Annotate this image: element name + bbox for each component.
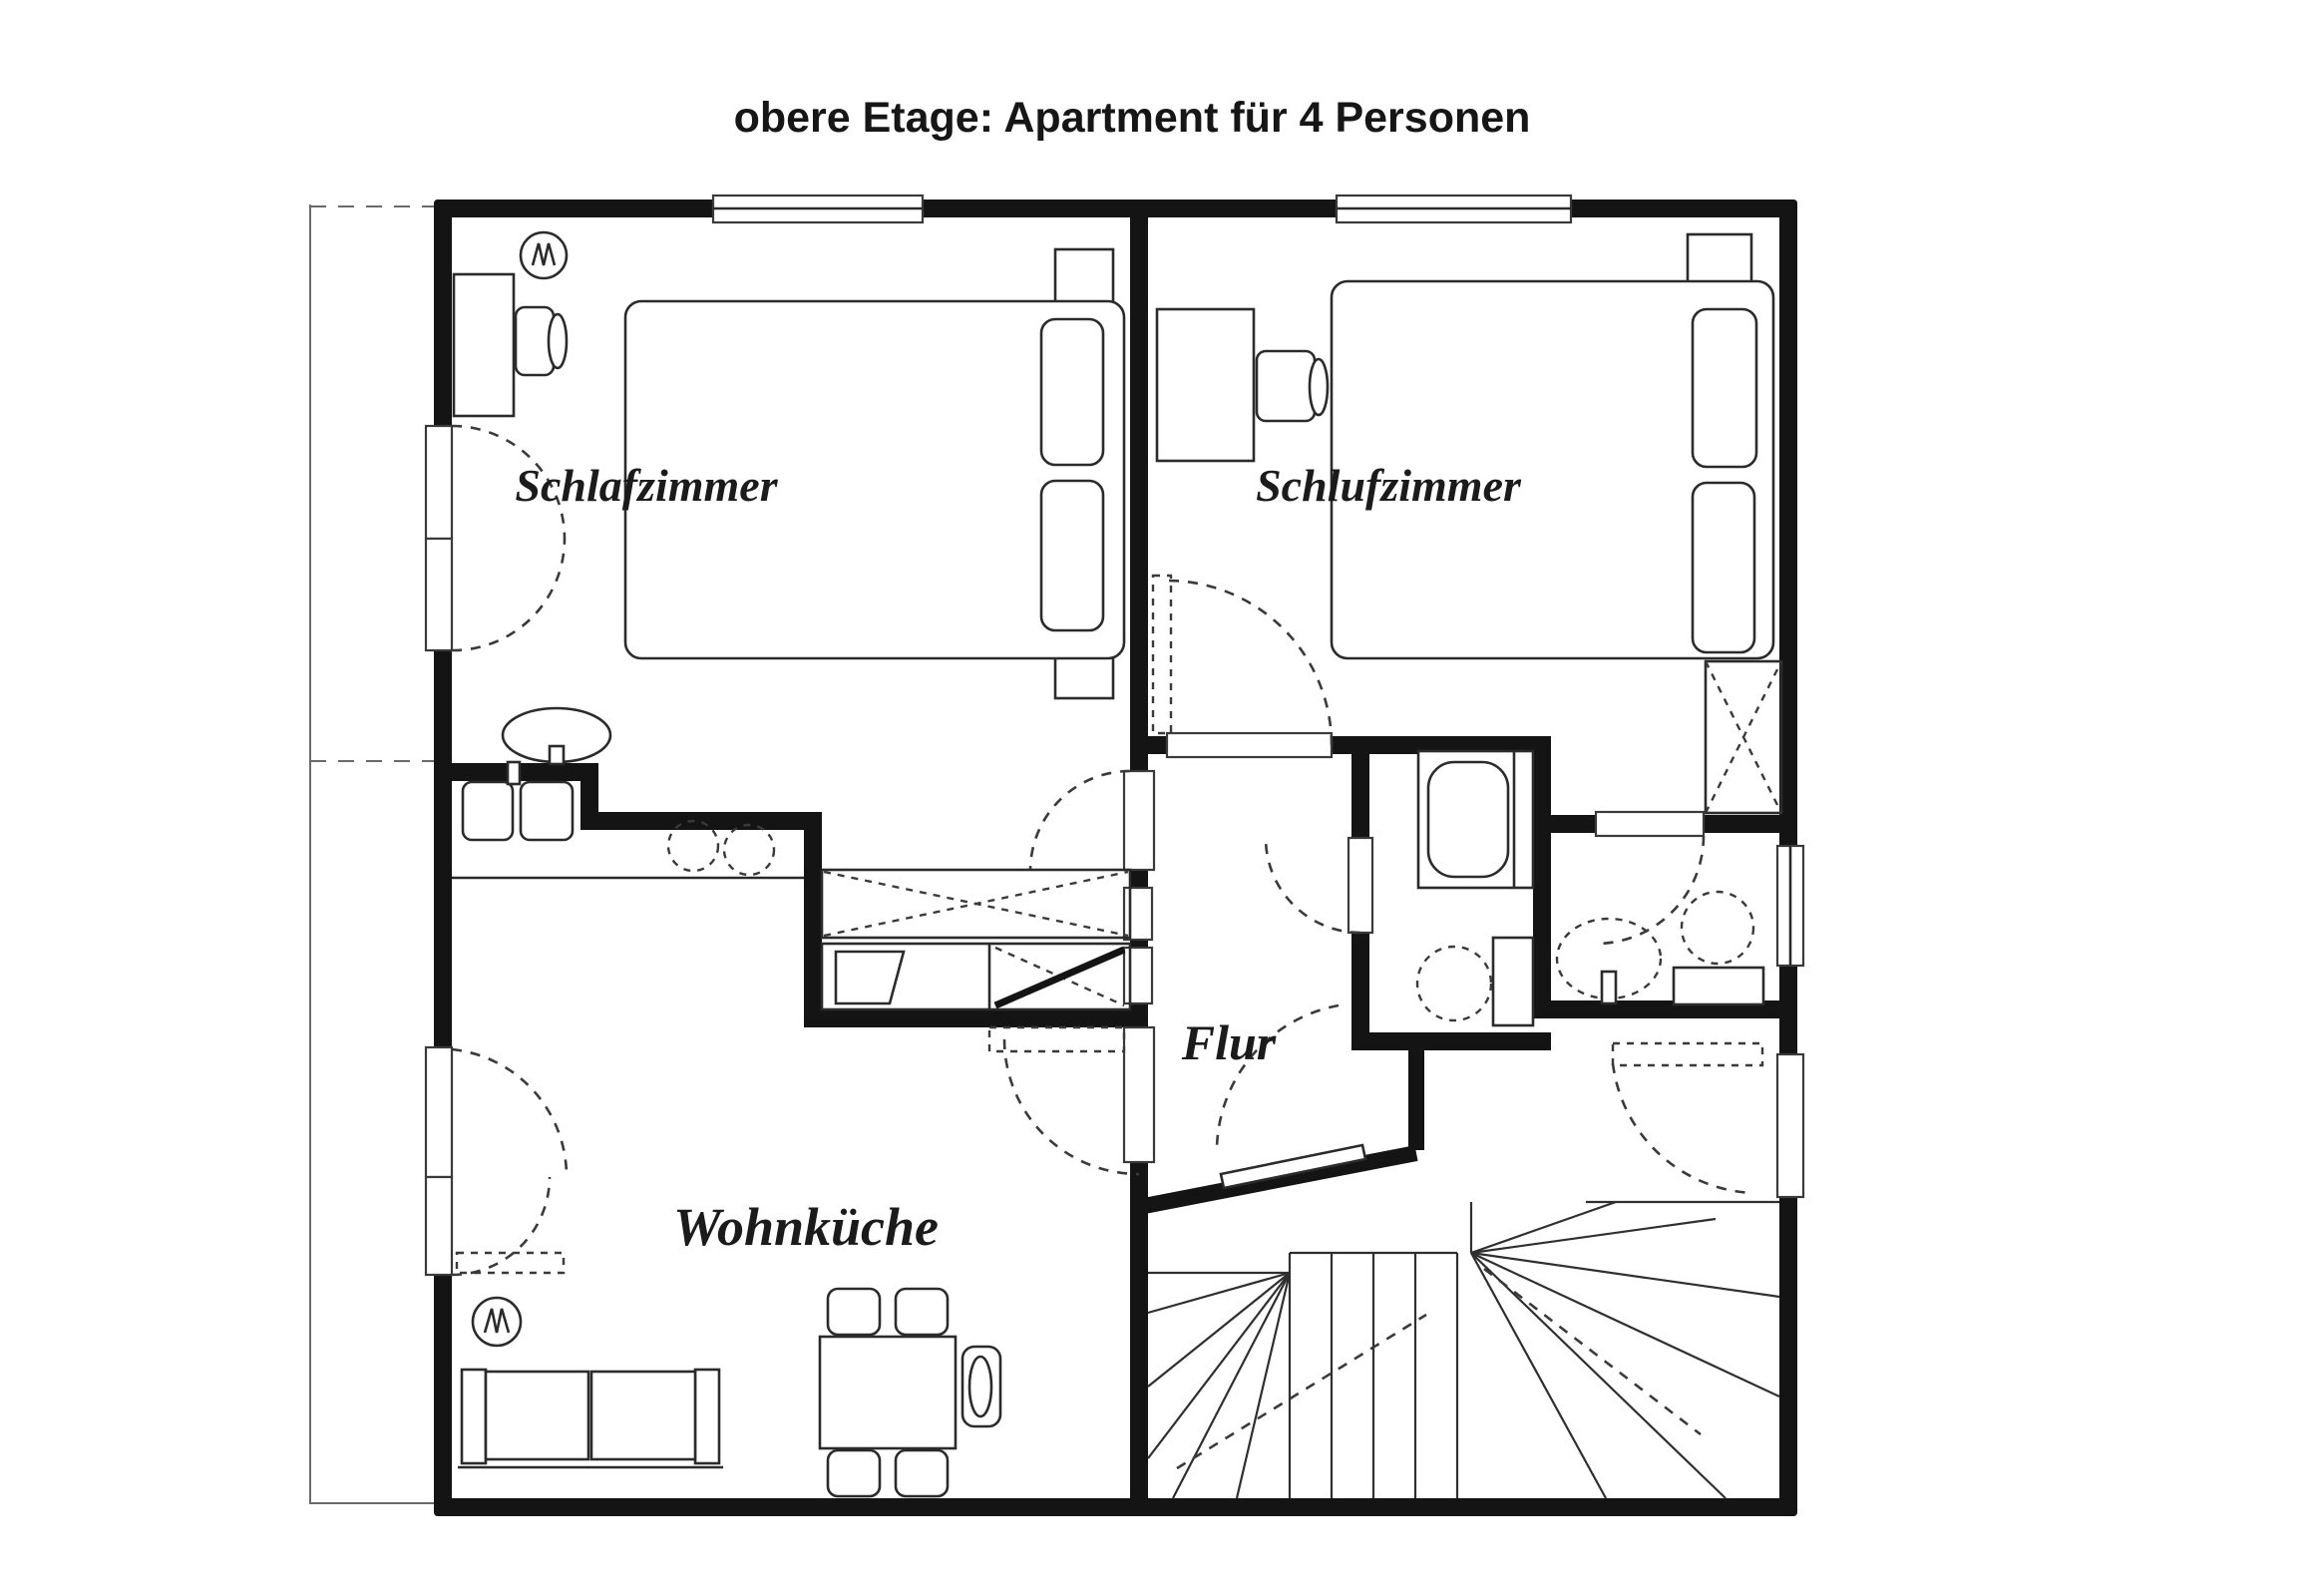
chair-icon [896,1450,948,1496]
lower-floor-outline-icon [310,204,436,1503]
toilet-icon [1417,938,1533,1025]
stair-walk-line [1484,1269,1701,1434]
bathtub-icon [1418,751,1533,888]
closet-door-upper-icon [1124,888,1152,940]
door-bathroom-icon [1266,838,1372,933]
desk-chair-icon [516,307,567,375]
stool-icon [1682,892,1753,964]
window-bedroom-left-icon [713,196,923,222]
bedroom-right-furniture [1157,234,1781,813]
ceiling-lamp-icon [521,232,567,278]
dining-table-icon [820,1337,956,1448]
wardrobe-icon [1706,661,1781,813]
label-bedroom-left: Schlafzimmer [515,460,778,511]
armchair-icon [962,1347,1000,1426]
bathroom-fixtures [1417,751,1533,1025]
closet-diagonal [995,950,1124,1005]
vanity-counter-icon [1674,968,1763,1004]
hall-closet [822,870,1130,1009]
nightstand-icon [1055,249,1113,303]
chair-icon [828,1450,880,1496]
sofa-icon [458,1370,723,1467]
closet-lower-cell [822,944,1130,1009]
door-kitchen-icon [989,1027,1154,1174]
door-bedroom-left-icon [1030,771,1154,871]
entrance-door-right-icon [1613,1043,1803,1197]
washbasin-icon [503,708,610,764]
floor-plan-page: obere Etage: Apartment für 4 Personen [0,0,2309,1596]
window-bedroom-right-icon [1337,196,1571,222]
label-hallway: Flur [1181,1014,1277,1070]
chair-icon [896,1289,948,1335]
staircase-icon [1148,1202,1779,1498]
washbasin-icon [1557,919,1661,1003]
shelf-icon [836,952,904,1003]
desk-icon [454,274,514,416]
door-washroom-icon [1596,812,1704,944]
window-washroom-icon [1777,846,1803,966]
page-title: obere Etage: Apartment für 4 Personen [734,94,1531,142]
hob-plate-icon [724,825,774,875]
chair-icon [828,1289,880,1335]
door-bedroom-right-icon [1153,576,1332,757]
french-window-kitchen-icon [426,1047,567,1275]
floor-plan-drawing: obere Etage: Apartment für 4 Personen [0,0,2309,1596]
desk-icon [1157,309,1254,461]
ceiling-lamp-icon [473,1298,521,1346]
stair-walk-line [1177,1315,1426,1468]
label-bedroom-right: Schlufzimmer [1256,460,1522,511]
desk-chair-icon [1257,351,1328,421]
washroom-fixtures [1557,892,1763,1004]
label-kitchen: Wohnküche [673,1197,939,1257]
closet-door-lower-icon [1124,948,1152,1003]
living-area-furniture [458,1289,1000,1496]
